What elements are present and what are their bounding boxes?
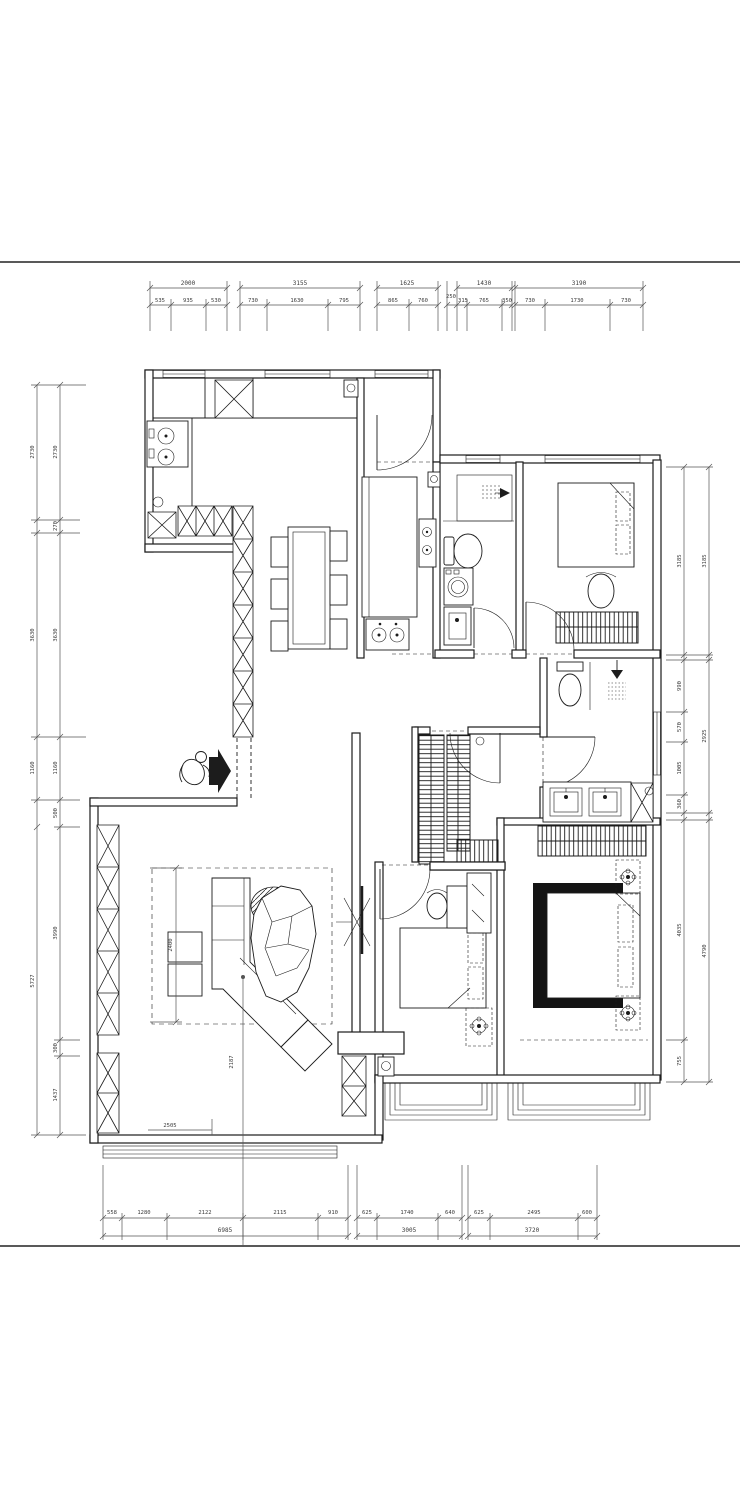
bay-window-master [508,1083,650,1120]
dim-label: 2730 [53,445,59,458]
dim-label: 1160 [30,761,36,774]
closet-fixture-icon [476,737,484,745]
dimension-chain-top: 2000 3155 1625 1430 3190 535 935 530 730… [147,280,646,331]
wall-balcony-right [433,370,440,462]
wall-kitchen-step [145,544,235,552]
kitchen [147,378,440,737]
dim-label: 1160 [53,761,59,774]
floor-plan-drawing: 2000 3155 1625 1430 3190 535 935 530 730… [0,0,740,1500]
dim-label: 3720 [525,1227,540,1234]
dim-label: 360 [677,799,683,809]
ceiling-fixture-icon [344,380,358,397]
island-cooktop-icon [366,619,409,650]
dim-label: 1005 [677,761,683,774]
bedroom-2 [400,873,492,1046]
dimension-chain-right: 3185 990 570 1005 360 4035 755 3185 2925… [666,464,713,1085]
toilet-master-icon [557,662,583,706]
bedroom-1 [556,483,638,643]
dim-label: 2505 [163,1123,176,1129]
wall-south-bed1-a [435,650,474,658]
chair-1 [586,573,616,609]
closet-column-2 [447,735,470,851]
dim-label: 500 [53,808,59,818]
dim-label: 1437 [53,1088,59,1101]
wall-living-bottom [90,1135,382,1143]
dim-label: 2187 [229,1055,235,1068]
dim-label: 3005 [402,1227,417,1234]
dim-label: 300 [53,1043,59,1053]
door-bed2 [380,865,430,919]
dim-label: 3190 [572,280,587,287]
master-bedroom [520,826,648,1040]
dim-label: 865 [388,298,398,304]
dining-set [271,527,347,651]
dim-label: 755 [677,1056,683,1066]
door-balcony [377,415,432,470]
window-living-bottom [103,1146,337,1158]
dimension-chain-bottom: 558 1280 2122 2115 910 625 1740 640 625 … [100,1165,600,1240]
dim-label: 910 [328,1210,338,1216]
dim-label: 2000 [181,280,196,287]
person-figure [178,752,210,789]
dim-label: 1430 [477,280,492,287]
desk-2 [447,886,467,928]
dim-label: 2495 [527,1210,540,1216]
tv-wall-cabinets-x [342,1056,366,1116]
dim-label: 625 [474,1210,484,1216]
cooktop-icon [147,421,188,467]
wall-south-band [375,1075,660,1083]
plant-bed2-icon [466,1008,492,1046]
kitchen-cabinet-x [215,380,253,418]
dim-label: 2925 [702,729,708,742]
toilet-icon [444,534,482,568]
wall-closet-left [412,727,418,862]
door-bathm [543,737,595,787]
kitchen-island [362,477,436,617]
dim-label: 990 [677,681,683,691]
dim-label: 4035 [677,923,683,936]
shower-head-master-icon [608,660,626,699]
dim-label: 795 [339,298,349,304]
floor-plan-page: 2000 3155 1625 1430 3190 535 935 530 730… [0,0,740,1500]
door-bath1 [474,608,514,654]
dimension-chain-left: 2730 270 3630 1160 500 3990 300 1437 273… [30,382,86,1138]
wall-entry-top [90,798,237,806]
dim-label: 760 [418,298,428,304]
master-wardrobe [538,826,646,856]
kitchen-base-cabinets-x [178,506,232,536]
closet-bottom-unit [457,840,498,865]
entry-opening [237,738,251,800]
dim-label: 1730 [570,298,583,304]
living-wall-cabinets-x-lower [97,1053,119,1133]
mirror-cabinet [467,873,491,933]
wall-closet-bottom [430,862,505,870]
wall-bathm-left-a [540,658,547,737]
dim-label: 640 [445,1210,455,1216]
dim-label: 600 [582,1210,592,1216]
dim-label: 558 [107,1210,117,1216]
wall-closet-top-b [468,727,540,734]
dim-label: 3990 [53,926,59,939]
dim-label: 570 [677,722,683,732]
vanity-cabinet-x [631,783,653,822]
bed-2 [400,928,486,1008]
washing-machine-icon [444,568,473,605]
dim-label: 535 [155,298,165,304]
dim-label: 765 [479,298,489,304]
dim-label: 270 [53,521,59,531]
dim-label: 6985 [218,1227,233,1234]
dim-label: 530 [211,298,221,304]
master-bathroom [543,660,653,822]
dim-label: 1630 [290,298,303,304]
dim-label: 1625 [400,280,415,287]
bathroom-1 [443,475,514,645]
bay-window-bed2 [385,1083,497,1120]
dim-label: 250 [446,294,456,300]
dim-label: 1280 [137,1210,150,1216]
chair-2 [427,890,447,920]
dim-label: 1740 [400,1210,413,1216]
dim-label: 625 [362,1210,372,1216]
dim-label: 350 [502,298,512,304]
dim-label: 2122 [198,1210,211,1216]
dim-label: 730 [621,298,631,304]
closet-column-1 [419,735,444,864]
tall-cabinet-column-x [233,506,253,737]
shower-head-icon [482,486,510,498]
living-room [97,825,394,1133]
shower-area [457,475,512,521]
wall-south-bed1-c [574,650,660,658]
wall-bed2-living-connector [375,1075,383,1140]
dim-label: 2115 [273,1210,286,1216]
corridor-fixture-icon [428,472,440,487]
bath1-sink-icon [444,607,471,645]
dim-label: 730 [248,298,258,304]
bed-1 [558,483,634,567]
south-fixture-icon [378,1057,394,1076]
dim-label: 3630 [30,628,36,641]
wall-bath1-bed1-divider [516,462,523,654]
dim-label: 730 [525,298,535,304]
wardrobe-1 [556,612,638,643]
wall-tv [352,733,360,1045]
dim-label: 2400 [168,938,174,951]
dim-label: 3630 [53,628,59,641]
dim-label: 2730 [30,445,36,458]
dim-label: 3185 [702,554,708,567]
entry [178,749,231,793]
dim-label: 3155 [293,280,308,287]
wall-south-bed1-b [512,650,526,658]
wall-chunk-south [338,1032,404,1054]
dim-label: 935 [183,298,193,304]
master-bed [533,883,640,1008]
living-wall-cabinets-x [97,825,119,1035]
dim-label: 3185 [677,554,683,567]
entry-arrow-icon [209,749,231,793]
dim-label: 315 [458,298,468,304]
walk-in-closet [419,735,505,870]
dim-label: 5727 [30,974,36,987]
vanity-double-sink [543,782,631,822]
dim-label: 4790 [702,944,708,957]
